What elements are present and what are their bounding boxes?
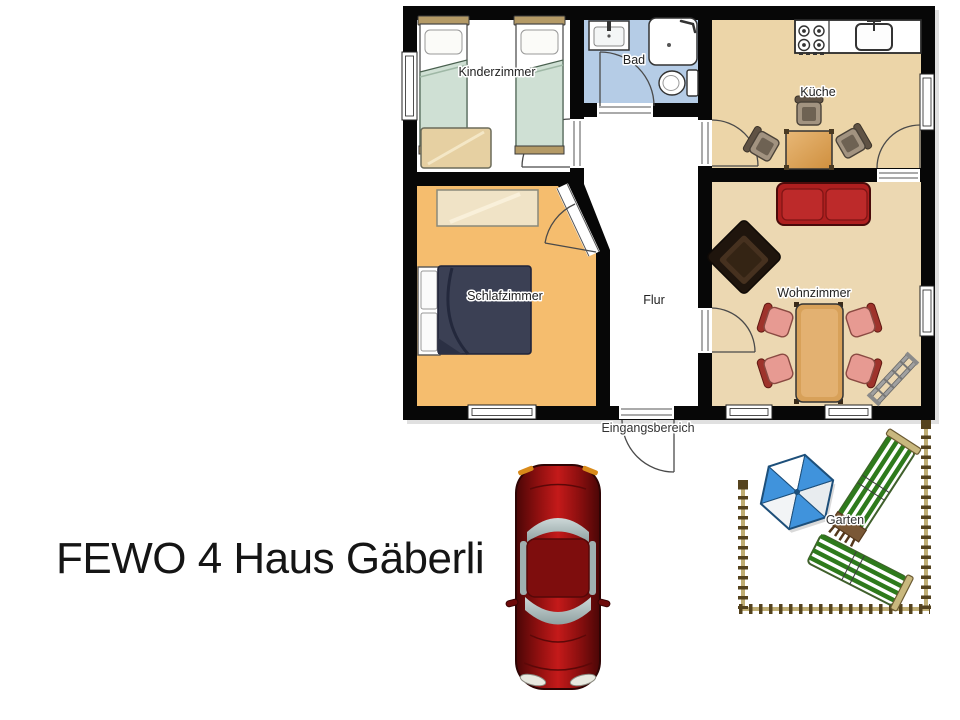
floorplan-svg: Kinderzimmer Bad Küche Schlafzimmer Flur…: [0, 0, 960, 720]
double-bed: [418, 266, 531, 355]
kitchen-sink: [856, 20, 892, 50]
single-bed-2: [514, 16, 565, 154]
chest: [421, 128, 491, 168]
garden: Garten: [738, 420, 931, 611]
room-label-bad: Bad: [623, 53, 645, 67]
kitchen-counter: [795, 20, 921, 55]
room-label-schlafzimmer: Schlafzimmer: [467, 289, 543, 303]
window-wohnzimmer-right: [920, 286, 934, 336]
room-label-kinderzimmer: Kinderzimmer: [458, 65, 535, 79]
bathroom-sink: [589, 21, 629, 50]
shower: [649, 18, 697, 65]
room-label-kueche: Küche: [800, 85, 835, 99]
window-schlafzimmer-bottom: [468, 405, 536, 419]
window-wohnzimmer-bottom-2: [825, 405, 872, 419]
entrance-door: [619, 405, 674, 472]
floor-plan: Kinderzimmer Bad Küche Schlafzimmer Flur…: [402, 6, 939, 472]
page: Kinderzimmer Bad Küche Schlafzimmer Flur…: [0, 0, 960, 720]
window-kueche-right: [920, 74, 934, 130]
page-title: FEWO 4 Haus Gäberli: [56, 534, 484, 584]
sun-lounger-2: [806, 531, 914, 611]
sun-lounger-1: [824, 428, 922, 550]
car-roof: [527, 539, 589, 597]
room-label-wohnzimmer: Wohnzimmer: [777, 286, 850, 300]
sofa: [777, 183, 870, 225]
car-side-window-left: [520, 541, 527, 595]
room-label-flur: Flur: [643, 293, 665, 307]
car: [505, 465, 610, 689]
window-wohnzimmer-bottom-1: [726, 405, 772, 419]
wardrobe: [437, 190, 538, 226]
window-kinderzimmer-left: [402, 52, 417, 120]
garden-label: Garten: [826, 513, 864, 527]
toilet: [659, 70, 698, 96]
car-side-window-right: [589, 541, 596, 595]
kitchen-chair-top: [795, 96, 823, 125]
dining-table: [794, 302, 843, 404]
entrance-label: Eingangsbereich: [601, 421, 694, 435]
kitchen-table: [784, 129, 834, 170]
